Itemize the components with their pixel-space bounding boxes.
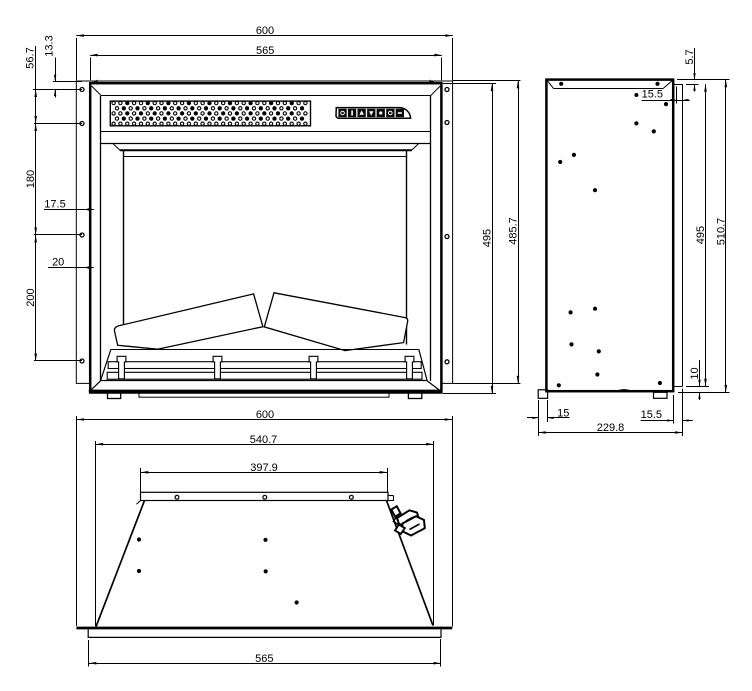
svg-text:540.7: 540.7 [250, 434, 278, 446]
svg-text:10: 10 [689, 367, 701, 379]
svg-text:495: 495 [482, 229, 494, 247]
svg-text:15.5: 15.5 [641, 409, 662, 421]
svg-text:200: 200 [25, 288, 37, 306]
svg-text:485.7: 485.7 [508, 217, 520, 245]
svg-text:565: 565 [256, 45, 274, 57]
svg-text:20: 20 [52, 257, 64, 269]
svg-text:229.8: 229.8 [597, 422, 625, 434]
svg-text:5.7: 5.7 [684, 49, 696, 64]
svg-text:180: 180 [25, 170, 37, 188]
svg-text:397.9: 397.9 [250, 462, 278, 474]
svg-text:600: 600 [256, 25, 274, 37]
svg-text:13.3: 13.3 [44, 35, 56, 56]
svg-text:17.5: 17.5 [44, 198, 65, 210]
svg-text:600: 600 [256, 409, 274, 421]
svg-text:15.5: 15.5 [642, 89, 663, 101]
svg-text:510.7: 510.7 [715, 218, 727, 246]
svg-text:15: 15 [557, 407, 569, 419]
svg-text:56.7: 56.7 [25, 47, 37, 68]
svg-text:495: 495 [695, 226, 707, 244]
svg-text:565: 565 [255, 653, 273, 665]
